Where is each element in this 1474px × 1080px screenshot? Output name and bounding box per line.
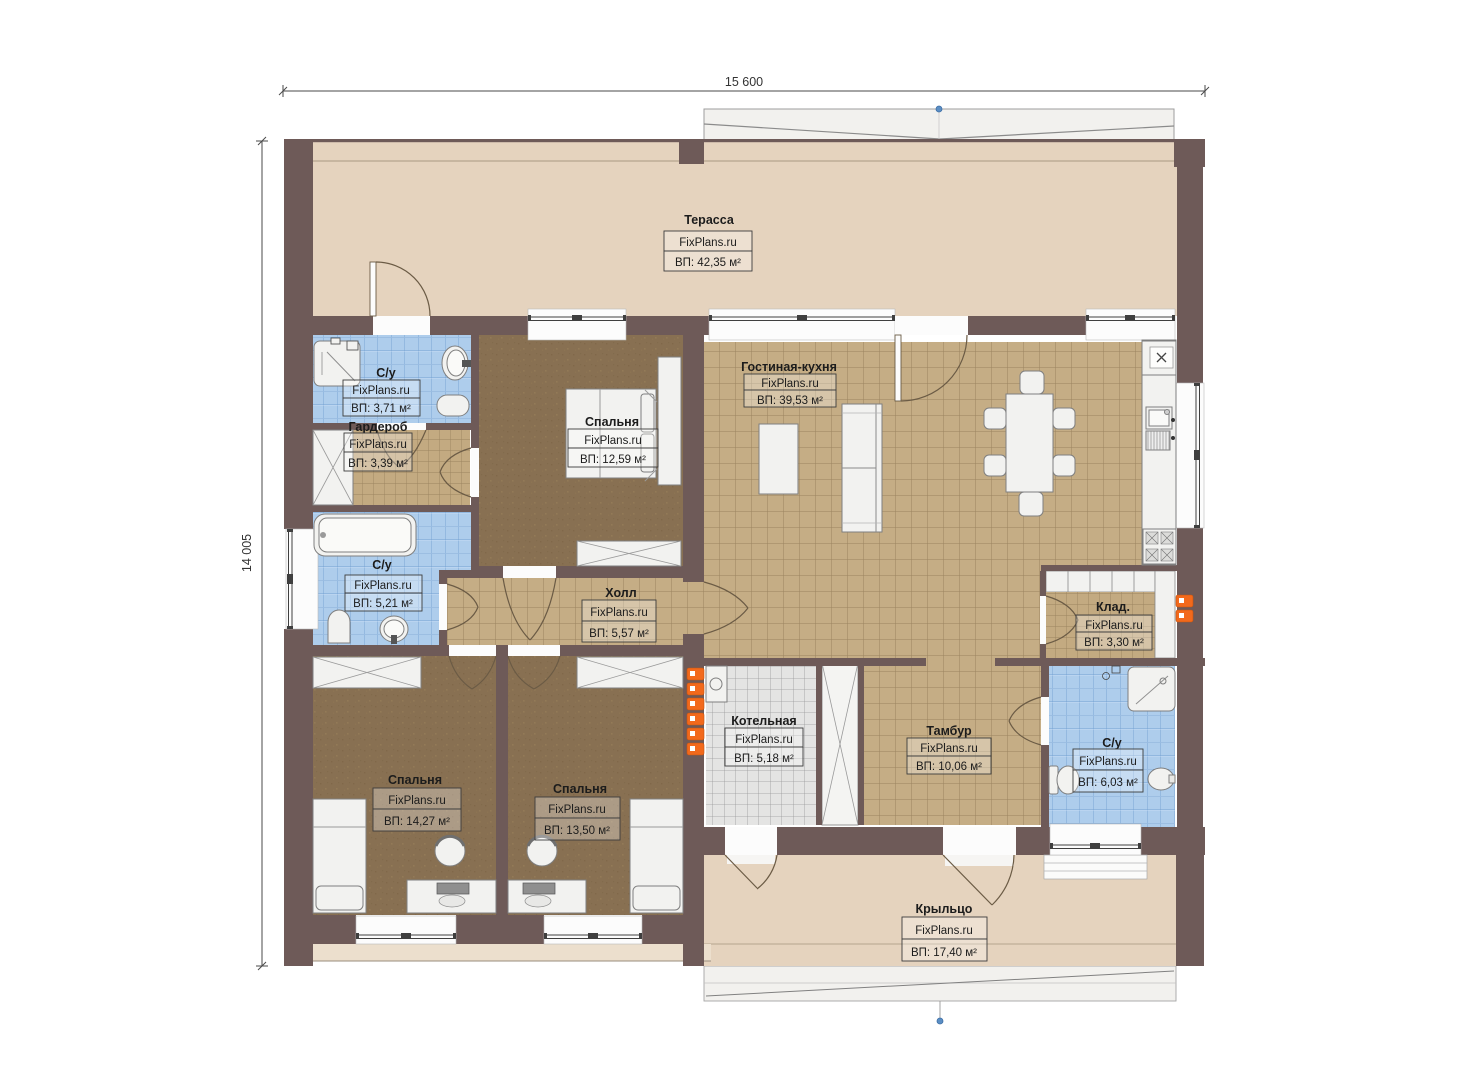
svg-text:Терасса: Терасса [684, 213, 735, 227]
svg-text:ВП: 14,27 м²: ВП: 14,27 м² [384, 816, 450, 828]
svg-text:FixPlans.ru: FixPlans.ru [761, 378, 819, 390]
svg-text:FixPlans.ru: FixPlans.ru [548, 804, 606, 816]
svg-text:Спальня: Спальня [585, 415, 639, 429]
svg-text:ВП: 10,06 м²: ВП: 10,06 м² [916, 761, 982, 773]
svg-text:ВП: 6,03 м²: ВП: 6,03 м² [1078, 777, 1138, 789]
svg-text:FixPlans.ru: FixPlans.ru [584, 435, 642, 447]
svg-text:Тамбур: Тамбур [926, 724, 972, 738]
svg-text:14 005: 14 005 [240, 534, 254, 572]
svg-text:ВП: 5,57 м²: ВП: 5,57 м² [589, 628, 649, 640]
svg-text:FixPlans.ru: FixPlans.ru [352, 385, 410, 397]
svg-text:ВП: 42,35 м²: ВП: 42,35 м² [675, 257, 741, 269]
svg-text:Спальня: Спальня [388, 773, 442, 787]
svg-text:ВП: 13,50 м²: ВП: 13,50 м² [544, 825, 610, 837]
svg-text:FixPlans.ru: FixPlans.ru [590, 607, 648, 619]
svg-text:FixPlans.ru: FixPlans.ru [920, 743, 978, 755]
svg-text:Клад.: Клад. [1096, 600, 1130, 614]
svg-text:ВП: 17,40 м²: ВП: 17,40 м² [911, 947, 977, 959]
svg-text:FixPlans.ru: FixPlans.ru [388, 795, 446, 807]
svg-text:Крыльцо: Крыльцо [916, 902, 973, 916]
svg-text:С/у: С/у [372, 558, 392, 572]
svg-text:FixPlans.ru: FixPlans.ru [354, 580, 412, 592]
svg-text:ВП: 39,53 м²: ВП: 39,53 м² [757, 395, 823, 407]
svg-text:FixPlans.ru: FixPlans.ru [349, 439, 407, 451]
svg-text:ВП: 5,21 м²: ВП: 5,21 м² [353, 598, 413, 610]
svg-text:ВП: 12,59 м²: ВП: 12,59 м² [580, 454, 646, 466]
svg-text:FixPlans.ru: FixPlans.ru [1079, 756, 1137, 768]
svg-text:Гостиная-кухня: Гостиная-кухня [741, 360, 837, 374]
svg-text:Гардероб: Гардероб [348, 420, 407, 434]
svg-text:FixPlans.ru: FixPlans.ru [1085, 620, 1143, 632]
svg-text:ВП: 3,30 м²: ВП: 3,30 м² [1084, 637, 1144, 649]
svg-text:FixPlans.ru: FixPlans.ru [915, 925, 973, 937]
svg-text:FixPlans.ru: FixPlans.ru [679, 237, 737, 249]
svg-text:ВП: 3,39 м²: ВП: 3,39 м² [348, 458, 408, 470]
svg-text:ВП: 5,18 м²: ВП: 5,18 м² [734, 753, 794, 765]
svg-text:ВП: 3,71 м²: ВП: 3,71 м² [351, 403, 411, 415]
svg-text:Холл: Холл [605, 586, 636, 600]
svg-text:С/у: С/у [376, 366, 396, 380]
svg-text:С/у: С/у [1102, 736, 1122, 750]
svg-text:Котельная: Котельная [731, 714, 796, 728]
svg-text:FixPlans.ru: FixPlans.ru [735, 734, 793, 746]
svg-text:15 600: 15 600 [725, 75, 763, 89]
svg-text:Спальня: Спальня [553, 782, 607, 796]
